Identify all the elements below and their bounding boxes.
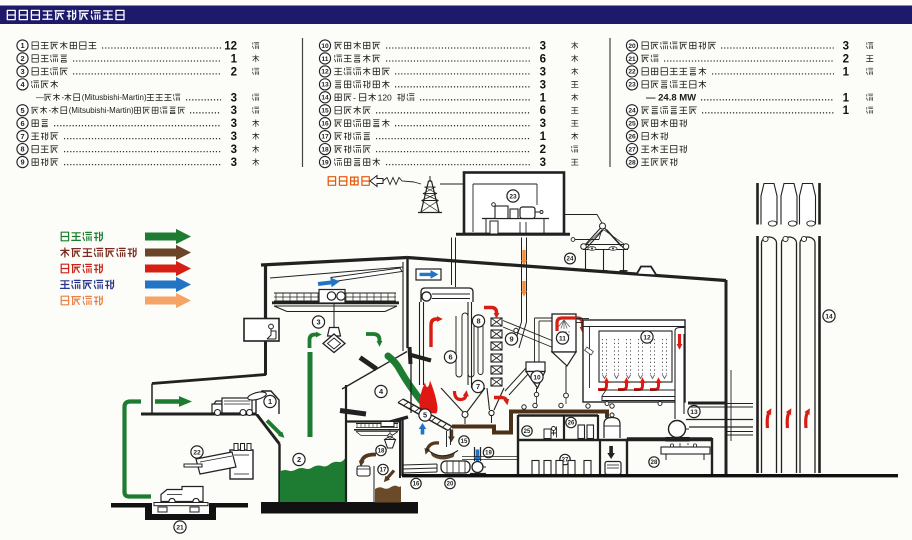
svg-text:3: 3 xyxy=(231,131,237,143)
svg-text:10: 10 xyxy=(321,43,329,50)
svg-text:13: 13 xyxy=(321,82,329,89)
svg-text:6: 6 xyxy=(20,119,24,128)
svg-text:6: 6 xyxy=(540,105,546,117)
svg-text:14: 14 xyxy=(825,313,833,320)
svg-text:12: 12 xyxy=(321,69,329,76)
svg-text:21: 21 xyxy=(176,524,184,531)
svg-text:1: 1 xyxy=(231,54,238,66)
svg-text:11: 11 xyxy=(322,56,329,63)
svg-text:120: 120 xyxy=(378,92,392,102)
svg-text:5: 5 xyxy=(20,106,24,115)
svg-text:22: 22 xyxy=(193,449,201,456)
svg-text:2: 2 xyxy=(231,66,237,78)
svg-text:22: 22 xyxy=(628,69,636,76)
svg-text:15: 15 xyxy=(321,108,329,115)
svg-text:6: 6 xyxy=(448,353,452,362)
svg-text:-: - xyxy=(62,93,65,102)
svg-text:3: 3 xyxy=(316,318,320,327)
svg-text:21: 21 xyxy=(628,56,636,63)
svg-text:16: 16 xyxy=(321,121,329,128)
svg-text:3: 3 xyxy=(20,67,24,76)
svg-text:(Mitusbishi-Martin): (Mitusbishi-Martin) xyxy=(82,93,147,102)
svg-text:2: 2 xyxy=(540,144,546,156)
svg-text:-: - xyxy=(49,106,52,115)
svg-text:19: 19 xyxy=(321,159,329,166)
svg-text:24: 24 xyxy=(628,108,636,115)
svg-text:3: 3 xyxy=(231,118,237,130)
svg-text:7: 7 xyxy=(20,132,24,141)
svg-text:1: 1 xyxy=(20,41,24,50)
svg-text:12: 12 xyxy=(224,41,237,53)
svg-text:23: 23 xyxy=(509,193,517,200)
svg-text:26: 26 xyxy=(568,421,575,427)
svg-text:26: 26 xyxy=(628,134,636,141)
svg-text:3: 3 xyxy=(231,92,237,104)
svg-text:7: 7 xyxy=(476,382,480,391)
svg-text:17: 17 xyxy=(380,468,387,474)
svg-text:1: 1 xyxy=(540,131,547,143)
svg-text:20: 20 xyxy=(447,482,454,488)
svg-text:15: 15 xyxy=(461,439,468,445)
svg-text:28: 28 xyxy=(628,159,636,166)
svg-text:10: 10 xyxy=(533,374,541,381)
svg-text:3: 3 xyxy=(843,41,849,53)
svg-text:3: 3 xyxy=(231,144,237,156)
svg-text:24: 24 xyxy=(567,256,574,263)
svg-text:— 24.8 MW: — 24.8 MW xyxy=(646,93,696,104)
svg-text:14: 14 xyxy=(321,95,329,102)
svg-text:1: 1 xyxy=(843,66,850,78)
svg-text:2: 2 xyxy=(843,54,849,66)
svg-text:20: 20 xyxy=(628,43,636,50)
svg-text:3: 3 xyxy=(231,105,237,117)
svg-text:19: 19 xyxy=(485,451,492,457)
svg-text:23: 23 xyxy=(628,82,636,89)
svg-text:13: 13 xyxy=(690,409,698,416)
svg-text:11: 11 xyxy=(559,335,566,342)
svg-text:3: 3 xyxy=(540,157,546,169)
svg-text:3: 3 xyxy=(540,79,546,91)
svg-text:9: 9 xyxy=(20,158,24,167)
svg-text:9: 9 xyxy=(509,335,513,344)
svg-text:27: 27 xyxy=(628,146,636,153)
svg-text:1: 1 xyxy=(843,105,850,117)
svg-text:1: 1 xyxy=(843,92,850,104)
svg-text:16: 16 xyxy=(413,482,420,488)
svg-text:17: 17 xyxy=(321,134,329,141)
svg-text:(Mitsubishi-Martin): (Mitsubishi-Martin) xyxy=(69,106,134,115)
svg-text:3: 3 xyxy=(231,157,237,169)
svg-text:1: 1 xyxy=(268,397,272,406)
svg-text:1: 1 xyxy=(540,92,547,104)
svg-text:28: 28 xyxy=(651,460,658,466)
svg-text:3: 3 xyxy=(540,66,546,78)
svg-text:12: 12 xyxy=(643,334,651,341)
svg-text:25: 25 xyxy=(628,121,636,128)
svg-text:25: 25 xyxy=(524,429,531,435)
svg-text:6: 6 xyxy=(540,54,546,66)
svg-text:-: - xyxy=(353,92,356,102)
svg-text:2: 2 xyxy=(297,455,301,464)
svg-text:2: 2 xyxy=(20,54,24,63)
svg-text:5: 5 xyxy=(423,411,427,420)
svg-text:8: 8 xyxy=(20,145,24,154)
svg-text:18: 18 xyxy=(378,449,385,455)
svg-text:3: 3 xyxy=(540,41,546,53)
svg-text:8: 8 xyxy=(476,317,480,326)
svg-text:3: 3 xyxy=(540,118,546,130)
svg-text:—: — xyxy=(36,93,44,102)
svg-text:18: 18 xyxy=(321,146,329,153)
